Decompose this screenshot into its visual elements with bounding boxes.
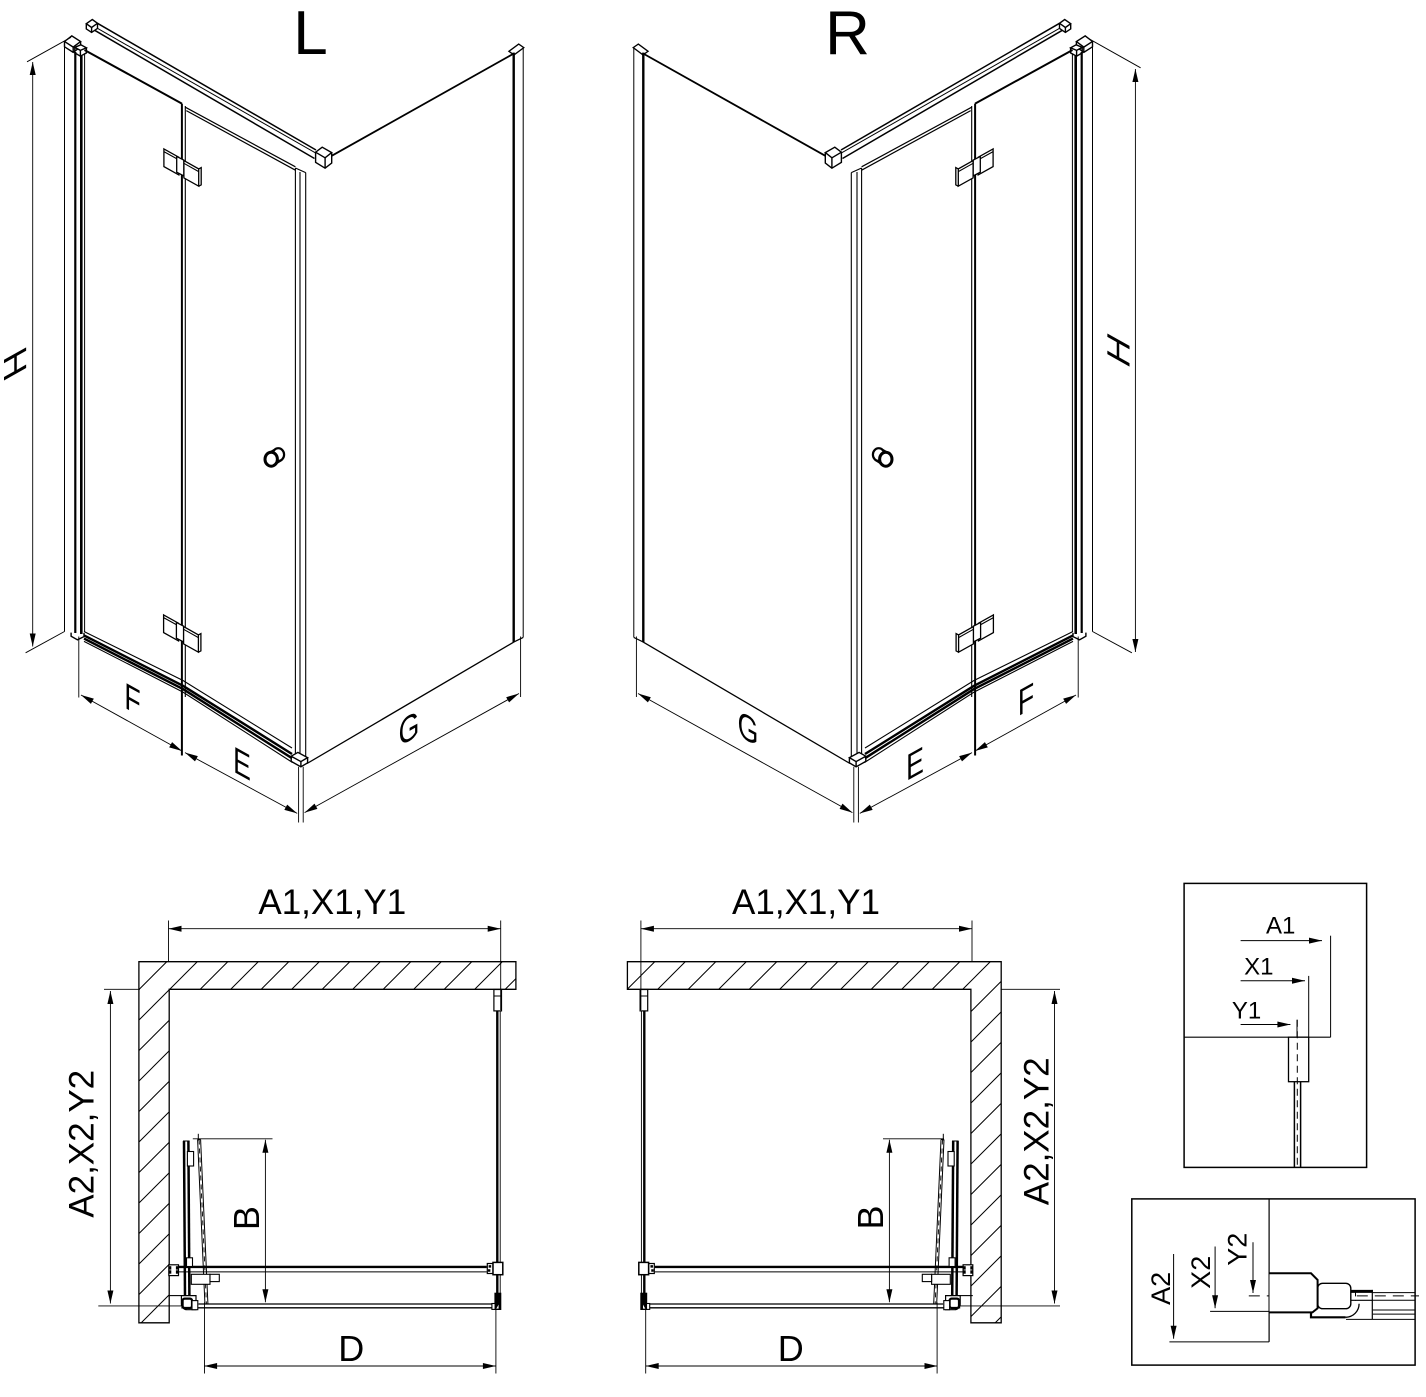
svg-text:A2,X2,Y2: A2,X2,Y2 [1017, 1057, 1056, 1205]
svg-text:L: L [293, 0, 327, 68]
svg-text:B: B [850, 1205, 891, 1229]
svg-text:Y1: Y1 [1232, 997, 1261, 1024]
svg-text:X1: X1 [1244, 954, 1273, 981]
svg-text:A2: A2 [1146, 1272, 1176, 1305]
svg-text:A2,X2,Y2: A2,X2,Y2 [63, 1070, 102, 1218]
svg-text:D: D [778, 1328, 804, 1369]
svg-text:A1: A1 [1266, 912, 1295, 939]
svg-text:A1,X1,Y1: A1,X1,Y1 [732, 883, 880, 922]
svg-text:A1,X1,Y1: A1,X1,Y1 [258, 883, 406, 922]
svg-text:R: R [825, 0, 870, 69]
svg-text:X2: X2 [1186, 1256, 1216, 1289]
svg-text:B: B [226, 1206, 267, 1230]
svg-text:D: D [338, 1328, 364, 1369]
svg-text:Y2: Y2 [1223, 1233, 1253, 1266]
